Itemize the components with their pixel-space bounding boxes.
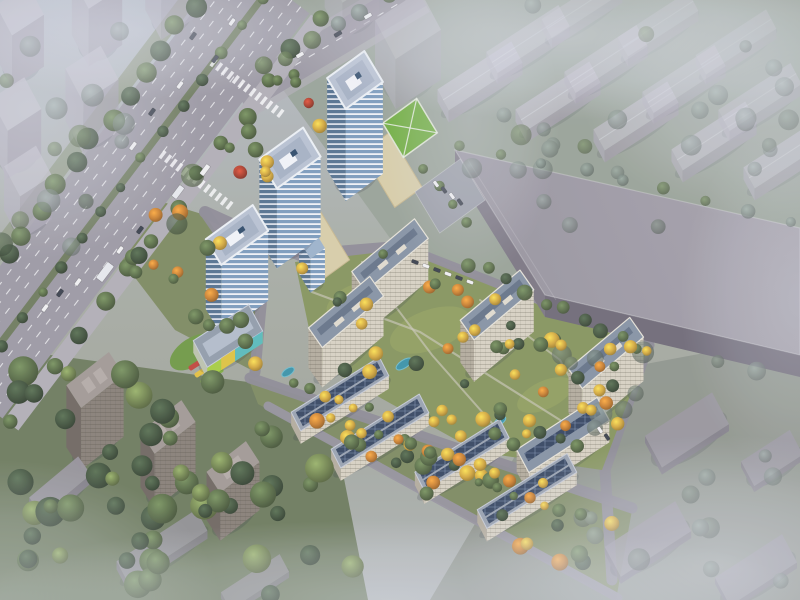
render-canvas <box>0 0 800 600</box>
aerial-development-render <box>0 0 800 600</box>
atmosphere-tint <box>0 0 800 600</box>
